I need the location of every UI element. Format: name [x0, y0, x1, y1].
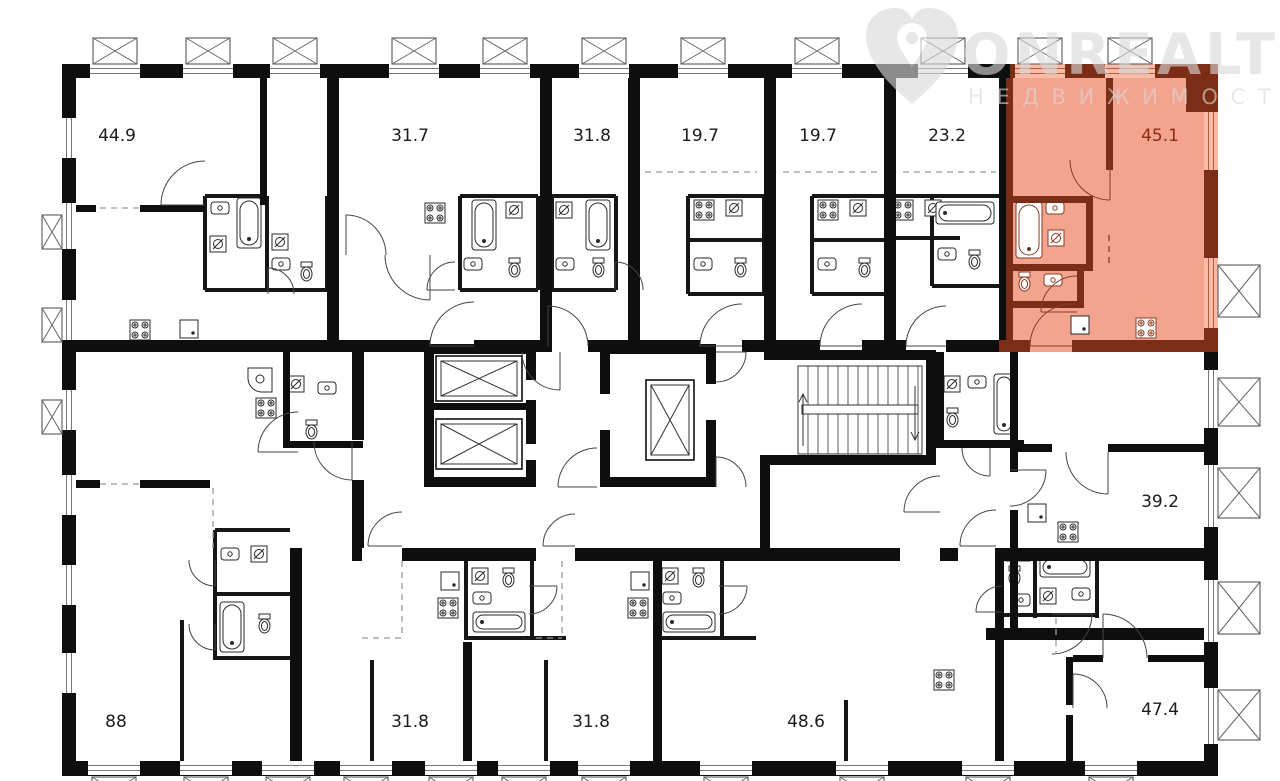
vent-box-icon: [840, 777, 884, 781]
vent-box-icon: [93, 38, 137, 64]
floor-plan: 44.931.731.819.719.723.245.139.28831.831…: [0, 0, 1280, 781]
sink-icon: [464, 258, 482, 270]
unit-area-label-unit-31-8-bottom-a: 31.8: [391, 712, 429, 732]
washing-machine-icon: [472, 568, 488, 584]
wall: [140, 480, 210, 488]
wall: [283, 441, 363, 448]
toilet-icon: [859, 258, 870, 277]
toilet-icon: [969, 250, 980, 269]
wall: [600, 344, 610, 394]
bathtub-icon: [1016, 202, 1042, 258]
counter-icon: [180, 320, 198, 338]
unit-area-label-unit-31-8-top: 31.8: [573, 126, 611, 146]
wall: [995, 548, 1004, 762]
wall-highlight: [1011, 301, 1084, 308]
wall: [463, 642, 472, 762]
window-icon: [1204, 258, 1218, 328]
window-icon: [962, 761, 1014, 775]
wall: [424, 477, 536, 487]
unit-area-label-unit-48-6: 48.6: [787, 712, 825, 732]
window-icon: [498, 761, 550, 775]
unit-area-label-unit-47-4: 47.4: [1141, 700, 1179, 720]
wall: [526, 460, 536, 487]
wall: [940, 548, 958, 561]
window-icon: [700, 761, 752, 775]
wall: [540, 78, 552, 352]
vent-box-icon: [92, 777, 136, 781]
wall: [764, 78, 776, 352]
washing-machine-icon: [850, 200, 866, 216]
window-icon: [1204, 370, 1218, 428]
bathtub-icon: [663, 612, 715, 632]
window-icon: [425, 761, 477, 775]
toilet-icon: [735, 258, 746, 277]
wall: [352, 548, 362, 561]
toilet-icon: [593, 258, 604, 277]
unit-area-label-unit-45-1[interactable]: 45.1: [1141, 126, 1179, 146]
vent-box-icon: [966, 777, 1010, 781]
wall: [1073, 655, 1103, 662]
vent-box-icon: [42, 215, 62, 249]
vent-box-icon: [1089, 777, 1133, 781]
window-icon: [578, 761, 630, 775]
toilet-icon: [503, 568, 514, 587]
vent-box-icon: [266, 777, 310, 781]
window-icon: [1085, 761, 1137, 775]
window-icon: [389, 64, 439, 78]
sink-icon: [968, 376, 986, 388]
wall: [352, 480, 364, 548]
vent-box-icon: [1218, 265, 1260, 317]
window-icon: [62, 653, 76, 693]
wall: [628, 78, 640, 352]
sink-icon: [663, 592, 681, 604]
bathtub-icon: [586, 200, 610, 250]
stove-icon: [1136, 318, 1156, 338]
washing-machine-icon: [210, 236, 226, 252]
washing-machine-icon: [556, 202, 572, 218]
vent-box-icon: [704, 777, 748, 781]
wall: [1066, 657, 1073, 705]
window-icon: [270, 64, 320, 78]
bathtub-icon: [473, 612, 525, 632]
wall: [1066, 715, 1073, 761]
unit-area-label-unit-88: 88: [105, 712, 127, 732]
vent-box-icon: [795, 38, 839, 64]
sink-icon: [318, 382, 336, 394]
stove-icon: [694, 200, 714, 220]
toilet-icon: [301, 262, 312, 281]
wall: [62, 761, 1218, 776]
vent-box-icon: [1218, 468, 1260, 518]
wall: [996, 548, 1204, 561]
wall: [764, 455, 936, 465]
wall: [424, 403, 536, 410]
stove-icon: [818, 200, 838, 220]
wall-highlight: [999, 340, 1030, 352]
washing-machine-icon: [506, 202, 522, 218]
sink-icon: [556, 258, 574, 270]
unit-area-label-unit-23-2: 23.2: [928, 126, 966, 146]
wall: [424, 344, 434, 487]
vent-box-icon: [582, 777, 626, 781]
vent-box-icon: [186, 38, 230, 64]
wall: [706, 344, 716, 384]
elevator-icon: [436, 419, 522, 469]
wall: [936, 352, 944, 448]
window-icon: [62, 390, 76, 430]
vent-box-icon: [392, 38, 436, 64]
washing-machine-icon: [1048, 230, 1064, 246]
wall: [926, 350, 936, 465]
counter-icon: [441, 572, 459, 590]
bathtub-icon: [220, 602, 244, 652]
window-icon: [90, 64, 140, 78]
vent-box-icon: [42, 400, 62, 434]
vent-box-icon: [1218, 378, 1260, 426]
watermark-brand: ONREALT: [962, 22, 1279, 88]
vent-box-icon: [344, 777, 388, 781]
wall: [946, 340, 1004, 352]
wall-highlight: [1006, 78, 1013, 352]
window-icon: [183, 64, 233, 78]
sink-icon: [938, 248, 956, 260]
vent-box-icon: [42, 308, 62, 342]
washing-machine-icon: [288, 376, 304, 392]
wall: [764, 350, 936, 360]
wall: [62, 340, 430, 352]
wall: [600, 430, 610, 487]
window-icon: [836, 761, 888, 775]
vent-box-icon: [429, 777, 473, 781]
toilet-icon: [1019, 272, 1030, 291]
window-icon: [1204, 688, 1218, 744]
unit-area-label-unit-19-7-a: 19.7: [681, 126, 719, 146]
window-icon: [1204, 580, 1218, 642]
stove-icon: [628, 598, 648, 618]
toilet-icon: [693, 568, 704, 587]
wall: [76, 480, 100, 488]
window-icon: [340, 761, 392, 775]
window-icon: [678, 64, 728, 78]
wall: [526, 400, 536, 444]
wall-highlight: [1072, 340, 1218, 352]
window-icon: [62, 475, 76, 515]
window-icon: [792, 64, 842, 78]
window-icon: [62, 565, 76, 605]
bathtub-icon: [472, 200, 496, 250]
wall: [986, 628, 1204, 640]
wall: [260, 78, 267, 205]
wall: [1108, 444, 1204, 452]
window-icon: [62, 118, 76, 158]
wall: [600, 344, 716, 354]
sink-icon: [694, 258, 712, 270]
washing-machine-icon: [662, 568, 678, 584]
window-icon: [62, 203, 76, 249]
wall: [283, 352, 290, 448]
vent-box-icon: [483, 38, 527, 64]
elevator-icon: [646, 380, 694, 460]
wall-highlight: [1011, 264, 1093, 271]
vent-box-icon: [273, 38, 317, 64]
counter-icon: [1071, 316, 1089, 334]
unit-area-label-unit-31-8-bottom-b: 31.8: [572, 712, 610, 732]
wall: [1148, 655, 1204, 662]
wall: [526, 344, 536, 380]
window-icon: [88, 761, 140, 775]
stove-icon: [425, 203, 445, 223]
washing-machine-icon: [726, 200, 742, 216]
wall: [884, 78, 896, 352]
unit-area-label-unit-19-7-b: 19.7: [799, 126, 837, 146]
window-icon: [180, 761, 232, 775]
vent-box-icon: [502, 777, 546, 781]
unit-area-label-unit-31-7: 31.7: [391, 126, 429, 146]
toilet-icon: [509, 258, 520, 277]
sink-icon: [473, 592, 491, 604]
window-icon: [480, 64, 530, 78]
washing-machine-icon: [944, 376, 960, 392]
washing-machine-icon: [272, 234, 288, 250]
wall: [999, 78, 1006, 352]
window-icon: [579, 64, 629, 78]
counter-icon: [631, 572, 649, 590]
wall: [575, 548, 900, 561]
vent-box-icon: [1218, 582, 1260, 634]
window-icon: [1204, 465, 1218, 527]
sink-icon: [1046, 202, 1064, 214]
vent-box-icon: [184, 777, 228, 781]
toilet-icon: [306, 420, 317, 439]
wall: [327, 78, 339, 352]
washing-machine-icon: [1040, 588, 1056, 604]
stove-icon: [130, 320, 150, 340]
sink-icon: [272, 258, 290, 270]
elevator-icon: [436, 356, 522, 401]
wall: [600, 477, 716, 487]
sink-icon: [818, 258, 836, 270]
window-icon: [1204, 112, 1218, 170]
toilet-icon: [947, 408, 958, 427]
sink-icon: [211, 202, 229, 214]
washing-machine-icon: [251, 546, 267, 562]
unit-area-label-unit-39-2: 39.2: [1141, 492, 1179, 512]
wall: [706, 420, 716, 487]
vent-box-icon: [681, 38, 725, 64]
window-icon: [262, 761, 314, 775]
wall: [402, 548, 536, 561]
wall: [290, 548, 302, 762]
stove-icon: [934, 670, 954, 690]
window-icon: [62, 300, 76, 340]
sink-icon: [1072, 588, 1090, 600]
sink-icon: [221, 548, 239, 560]
pin-dot: [906, 32, 918, 44]
floor-plan-page: 44.931.731.819.719.723.245.139.28831.831…: [0, 0, 1280, 781]
stairs-icon: [798, 366, 922, 454]
stove-icon: [1058, 522, 1078, 542]
wall: [760, 455, 770, 548]
toilet-icon: [259, 614, 270, 633]
wall: [352, 352, 364, 440]
wall: [653, 548, 662, 762]
wall-highlight: [1011, 196, 1093, 203]
wall: [140, 205, 205, 212]
unit-area-label-unit-44-9: 44.9: [98, 126, 136, 146]
wall-highlight: [1086, 196, 1093, 271]
bathtub-icon: [936, 202, 994, 224]
stove-icon: [438, 598, 458, 618]
stove-icon: [256, 398, 276, 418]
counter-icon: [1028, 504, 1046, 522]
wall: [1018, 444, 1052, 452]
vent-box-icon: [582, 38, 626, 64]
bathtub-icon: [237, 198, 261, 248]
wall: [1010, 352, 1018, 472]
watermark-tagline: Н Е Д В И Ж И М О С Т Ь: [968, 85, 1280, 109]
vent-box-icon: [1218, 690, 1260, 740]
wall: [1010, 510, 1018, 640]
wall: [76, 205, 96, 212]
